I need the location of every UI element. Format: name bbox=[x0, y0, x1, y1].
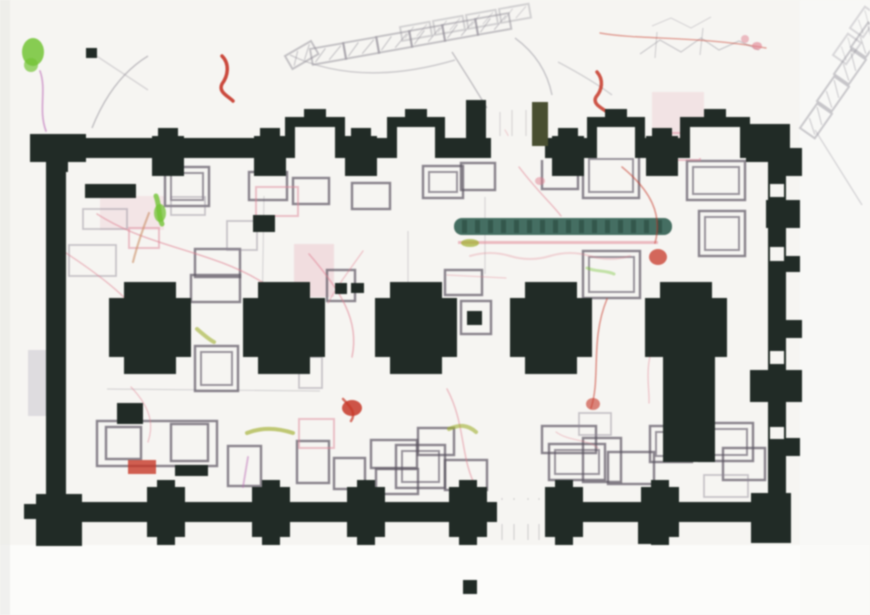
teal-beam bbox=[454, 218, 672, 235]
black-feature bbox=[175, 465, 208, 476]
pillar-top-arm bbox=[525, 282, 577, 299]
teal-beam-tick bbox=[527, 220, 532, 233]
bottom-wall-pier bbox=[252, 487, 290, 537]
pillar-bottom-arm bbox=[258, 356, 310, 374]
red-filled-mark bbox=[128, 460, 156, 474]
green-blob bbox=[154, 204, 166, 222]
right-wall-buttress bbox=[784, 148, 802, 176]
top-wall-pier bbox=[254, 136, 286, 176]
wall-corner-block bbox=[48, 160, 68, 172]
olive-blob bbox=[461, 239, 479, 247]
bay-side-wall bbox=[587, 117, 597, 158]
pink-blob bbox=[535, 177, 545, 185]
bottom-wall-pier bbox=[449, 487, 487, 537]
bottom-pier-nub bbox=[651, 480, 669, 488]
wall-corner-block bbox=[746, 124, 790, 162]
pillar-shaft bbox=[663, 340, 715, 462]
red-blob bbox=[586, 398, 600, 410]
teal-beam-tick bbox=[462, 220, 467, 233]
black-feature bbox=[86, 48, 97, 58]
bottom-pier-nub bbox=[157, 480, 175, 488]
pillar-top-arm bbox=[124, 282, 176, 299]
top-wall-pier-nub bbox=[652, 128, 672, 138]
door-jamb bbox=[466, 100, 486, 146]
black-feature bbox=[85, 184, 136, 198]
pink-blob bbox=[741, 35, 749, 43]
scanned-floor-plan-page bbox=[0, 0, 870, 615]
wall-corner-block bbox=[751, 493, 791, 543]
teal-beam-underline bbox=[458, 241, 658, 244]
paper-right-margin bbox=[800, 0, 870, 615]
bottom-wall-pier bbox=[545, 487, 583, 537]
bay-side-wall bbox=[387, 117, 397, 158]
bay-side-wall bbox=[285, 117, 295, 158]
bay-tick bbox=[704, 109, 726, 117]
wall-corner-block bbox=[24, 504, 38, 519]
pillar-body bbox=[375, 298, 457, 357]
bay-side-wall bbox=[635, 117, 645, 158]
bottom-entrance-gap bbox=[497, 500, 545, 524]
top-wall-pier bbox=[552, 136, 584, 176]
top-wall-pier-nub bbox=[158, 128, 178, 138]
bay-side-wall bbox=[680, 117, 690, 158]
top-wall-pier-nub bbox=[351, 128, 371, 138]
bottom-pier-nub bbox=[357, 480, 375, 488]
red-blob bbox=[342, 400, 362, 416]
bay-tick bbox=[605, 109, 627, 117]
bay-opening bbox=[595, 127, 637, 158]
right-wall-buttress bbox=[750, 370, 802, 402]
teal-beam-tick bbox=[644, 220, 649, 233]
green-blob bbox=[24, 58, 38, 72]
teal-beam-tick bbox=[605, 220, 610, 233]
bay-side-wall bbox=[335, 117, 345, 158]
bay-opening bbox=[395, 127, 437, 158]
bay-tick bbox=[304, 109, 326, 117]
right-wall-buttress bbox=[784, 438, 800, 456]
pillar-body bbox=[109, 298, 191, 357]
pillar-body bbox=[510, 298, 592, 357]
left-wall bbox=[46, 152, 66, 504]
black-feature bbox=[351, 283, 364, 293]
wall-corner-block bbox=[36, 494, 82, 546]
bottom-wall-pier bbox=[147, 487, 185, 537]
bay-opening bbox=[688, 127, 742, 158]
right-wall-notch bbox=[770, 247, 784, 261]
bottom-pier-nub bbox=[555, 480, 573, 488]
bottom-pier-nub bbox=[262, 480, 280, 488]
black-feature bbox=[253, 215, 275, 232]
right-wall-notch bbox=[770, 427, 784, 439]
top-wall-pier bbox=[646, 136, 678, 176]
right-wall-buttress bbox=[784, 320, 802, 338]
teal-beam-tick bbox=[579, 220, 584, 233]
teal-beam-tick bbox=[566, 220, 571, 233]
black-feature bbox=[467, 311, 482, 325]
top-wall-pier bbox=[152, 136, 184, 176]
bottom-wall-pier bbox=[347, 487, 385, 537]
bottom-pier-nub bbox=[459, 536, 477, 545]
bottom-pier-nub bbox=[357, 536, 375, 545]
teal-beam-tick bbox=[488, 220, 493, 233]
bottom-pier-nub bbox=[459, 480, 477, 488]
pillar-top-arm bbox=[660, 282, 712, 299]
teal-beam-tick bbox=[540, 220, 545, 233]
top-wall-pier-nub bbox=[260, 128, 280, 138]
teal-beam-tick bbox=[514, 220, 519, 233]
bay-side-wall bbox=[435, 117, 445, 158]
pillar-top-arm bbox=[390, 282, 442, 299]
paper-lower-margin bbox=[0, 545, 870, 615]
pillar-body bbox=[243, 298, 325, 357]
pink-blob bbox=[752, 42, 762, 50]
right-wall-notch bbox=[770, 351, 784, 364]
teal-beam-tick bbox=[618, 220, 623, 233]
scan-edge-shadow bbox=[0, 0, 10, 615]
right-wall-buttress bbox=[766, 200, 800, 228]
bottom-pier-nub bbox=[262, 536, 280, 545]
wall-corner-block bbox=[638, 520, 662, 544]
right-wall-notch bbox=[770, 184, 784, 197]
bottom-pier-nub bbox=[157, 536, 175, 545]
teal-beam-tick bbox=[475, 220, 480, 233]
wall-corner-block bbox=[30, 134, 86, 162]
red-blob bbox=[649, 249, 667, 265]
bay-front-wall bbox=[680, 117, 750, 127]
bay-opening bbox=[293, 127, 337, 158]
pillar-bottom-arm bbox=[390, 356, 442, 374]
top-wall-pier bbox=[345, 136, 377, 176]
black-feature bbox=[117, 403, 143, 424]
right-wall-buttress bbox=[784, 256, 800, 272]
pillar-top-arm bbox=[258, 282, 310, 299]
pillar-bottom-arm bbox=[525, 356, 577, 374]
teal-beam-tick bbox=[592, 220, 597, 233]
door-jamb bbox=[532, 102, 548, 146]
black-feature bbox=[463, 580, 477, 594]
floor-plan-drawing bbox=[0, 0, 870, 615]
black-feature bbox=[335, 283, 347, 294]
bay-tick bbox=[405, 109, 427, 117]
pillar-bottom-arm bbox=[124, 356, 176, 374]
outside-wall-shadow-strip bbox=[28, 350, 48, 416]
teal-beam-tick bbox=[553, 220, 558, 233]
teal-beam-tick bbox=[501, 220, 506, 233]
bottom-pier-nub bbox=[555, 536, 573, 545]
teal-beam-tick bbox=[631, 220, 636, 233]
top-wall-pier-nub bbox=[558, 128, 578, 138]
